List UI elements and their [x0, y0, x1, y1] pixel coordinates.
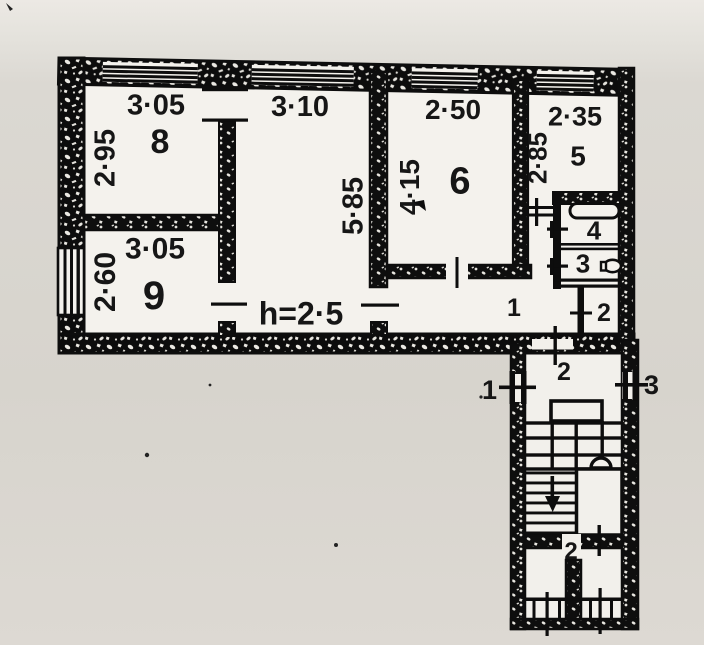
svg-text:5·85: 5·85	[338, 177, 370, 235]
svg-text:6: 6	[449, 161, 470, 203]
svg-text:2·85: 2·85	[523, 132, 553, 184]
svg-text:2·35: 2·35	[548, 102, 602, 132]
svg-text:3·05: 3·05	[127, 90, 185, 122]
svg-text:h=2·5: h=2·5	[259, 296, 343, 332]
svg-text:2: 2	[557, 358, 571, 386]
svg-text:2: 2	[597, 299, 611, 327]
svg-text:9: 9	[143, 274, 165, 318]
svg-text:3·10: 3·10	[271, 91, 329, 123]
svg-text:3·05: 3·05	[125, 233, 185, 266]
svg-text:3: 3	[576, 249, 590, 279]
svg-text:8: 8	[151, 123, 170, 161]
svg-text:2·60: 2·60	[89, 252, 122, 312]
svg-text:3: 3	[644, 370, 659, 400]
svg-text:1: 1	[507, 294, 521, 322]
svg-text:2·95: 2·95	[90, 129, 122, 187]
svg-text:4: 4	[587, 216, 602, 246]
svg-text:2·50: 2·50	[425, 94, 481, 125]
svg-text:1: 1	[482, 375, 497, 405]
svg-text:5: 5	[570, 141, 586, 172]
